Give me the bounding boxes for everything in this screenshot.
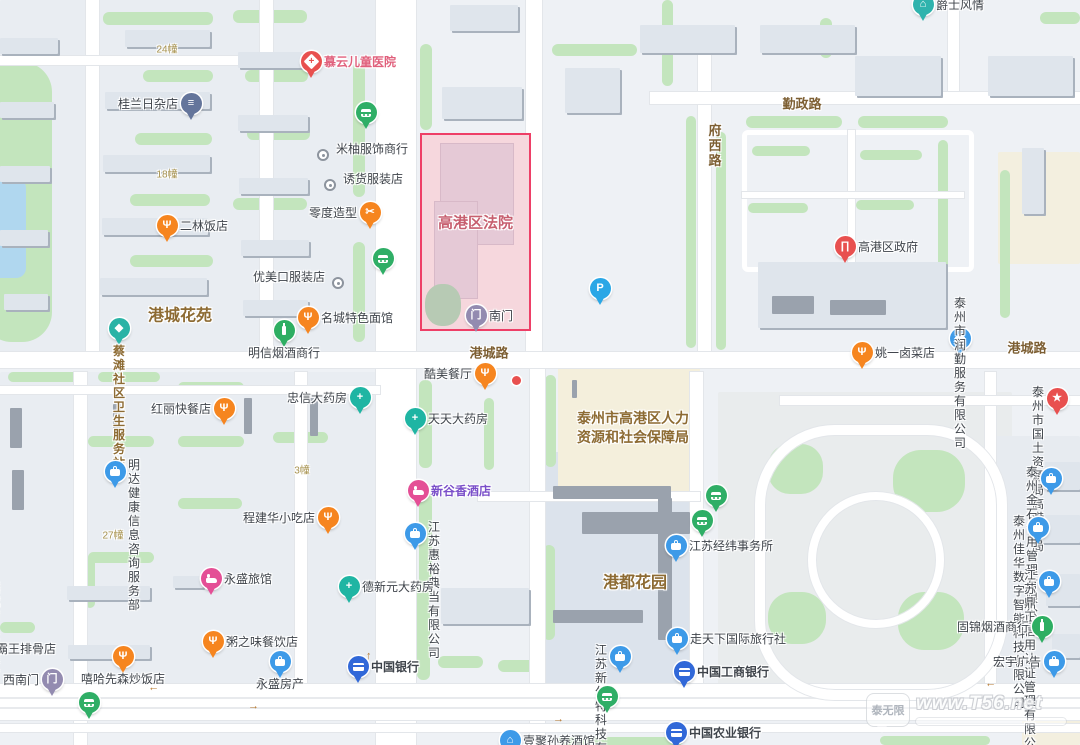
green-area (245, 70, 308, 82)
poi-label: 西南门 (3, 673, 39, 687)
restaurant-pin-icon[interactable]: Ψ (298, 307, 319, 328)
bus-stop-pin-icon[interactable] (692, 510, 713, 531)
bank-pin-icon[interactable] (348, 656, 369, 677)
building (68, 645, 150, 659)
road (0, 56, 262, 65)
building (565, 68, 620, 113)
green-area (353, 242, 365, 342)
company-pin-icon[interactable] (666, 535, 687, 556)
bus-stop-pin-icon[interactable] (356, 102, 377, 123)
case-icon (1046, 476, 1056, 483)
poi-label: 蔡滩社区卫 生服务站 (113, 344, 125, 470)
pharmacy-pin-icon[interactable]: + (350, 387, 371, 408)
gov-icon: ∏ (840, 241, 849, 252)
city-block (0, 372, 376, 684)
case-icon (615, 654, 625, 661)
green-area (88, 552, 154, 563)
company-pin-icon[interactable] (105, 461, 126, 482)
restaurant-pin-icon[interactable]: Ψ (475, 363, 496, 384)
hospital-pin-icon[interactable]: + (301, 51, 322, 72)
green-area (130, 194, 210, 206)
green-area (746, 116, 842, 128)
case-icon (1049, 659, 1059, 666)
restaurant-pin-icon[interactable]: Ψ (214, 398, 235, 419)
company-pin-icon[interactable] (1039, 571, 1060, 592)
tobacco-wine-shop-pin-icon[interactable] (1032, 616, 1053, 637)
road (698, 42, 711, 360)
restaurant-pin-icon[interactable]: Ψ (113, 646, 134, 667)
p-icon: P (596, 283, 603, 294)
bus-stop-pin-icon[interactable] (79, 692, 100, 713)
building-number-label: 24幢 (156, 41, 177, 56)
building (0, 102, 54, 118)
salon-pin-icon[interactable]: ✂ (360, 202, 381, 223)
highlighted-court-area[interactable]: 高港区法院 (420, 133, 531, 331)
case-icon (671, 543, 681, 550)
green-area (143, 70, 213, 82)
bus-icon (378, 255, 388, 263)
area-label: 港都花园 (603, 574, 667, 593)
building (12, 470, 24, 510)
bottle-icon (1040, 622, 1044, 631)
green-area (178, 436, 244, 447)
green-area (130, 255, 213, 267)
shop-ring-icon[interactable] (324, 179, 336, 191)
poi-label: 泰州市润勤服 务有限公司 (954, 296, 966, 450)
pharmacy-pin-icon[interactable]: + (339, 576, 360, 597)
bus-icon (602, 693, 612, 701)
building-number-label: 27幢 (102, 527, 123, 542)
bank-icon (671, 729, 682, 737)
building (855, 56, 941, 96)
case-icon (1033, 525, 1043, 532)
green-area (1040, 12, 1080, 24)
grid-icon: ≡ (188, 98, 194, 109)
road (742, 192, 964, 198)
direction-arrow: → (553, 713, 564, 725)
green-area (420, 44, 432, 130)
poi-label: 爵士风情 (936, 0, 984, 12)
water-area (0, 178, 26, 278)
poi-label: 粥之味餐饮店 (226, 635, 298, 649)
poi-label: 德新元大药房 (362, 580, 434, 594)
cross-icon: + (357, 392, 363, 403)
scissors-icon: ✂ (365, 207, 374, 218)
parking-pin-icon[interactable]: P (590, 278, 611, 299)
building (830, 300, 886, 315)
poi-label: 壹聚孙养酒馆 (523, 734, 595, 745)
poi-dot-icon[interactable] (512, 376, 521, 385)
house-icon: ⌂ (920, 0, 927, 10)
roundabout-inner-road (808, 492, 944, 628)
green-area (552, 44, 637, 56)
venue-pin-icon[interactable]: ⌂ (913, 0, 934, 15)
poi-label: 酷美餐厅 (424, 367, 472, 381)
bank-pin-icon[interactable] (666, 722, 687, 743)
restaurant-pin-icon[interactable]: Ψ (318, 507, 339, 528)
building (238, 52, 308, 68)
bottle-icon (282, 326, 286, 335)
bank-icon (353, 663, 364, 671)
shop-ring-icon[interactable] (317, 149, 329, 161)
building (10, 408, 22, 448)
tobacco-wine-shop-pin-icon[interactable] (274, 320, 295, 341)
watermark-url: www.T56.net (916, 693, 1042, 715)
building (450, 5, 518, 31)
building (0, 166, 50, 182)
building (4, 294, 48, 310)
bank-pin-icon[interactable] (674, 661, 695, 682)
road-label: 港城路 (1007, 338, 1046, 357)
green-area (686, 116, 696, 348)
green-area (438, 656, 483, 668)
poi-label: 优美口服装店 (253, 270, 325, 284)
green-area (545, 375, 556, 467)
company-pin-icon[interactable] (1044, 651, 1065, 672)
poi-label: 程建华小吃店 (243, 511, 315, 525)
road (376, 0, 416, 745)
restaurant-pin-icon[interactable]: Ψ (203, 631, 224, 652)
grocery-pin-icon[interactable]: ≡ (181, 93, 202, 114)
south-gate-pin-icon[interactable]: 门 (466, 305, 487, 326)
poi-label: 永盛房产 (256, 677, 304, 691)
map-canvas[interactable]: 高港区法院 港城花苑港都花园泰州市高港区人力 资源和社会保障局港城路港城路勤政路… (0, 0, 1080, 745)
pharmacy-pin-icon[interactable]: + (405, 408, 426, 429)
building (244, 398, 252, 434)
green-area (880, 736, 990, 745)
food-icon: Ψ (209, 636, 218, 647)
hospital-cross-icon: + (303, 54, 319, 70)
health-station-pin-icon[interactable]: ◆ (109, 318, 130, 339)
building (238, 115, 308, 131)
bureau-pin-icon[interactable]: ★ (1047, 388, 1068, 409)
gate-icon: 门 (471, 310, 482, 321)
building-number-label: 3幢 (294, 462, 310, 477)
cross-icon: + (412, 413, 418, 424)
bed-icon (413, 490, 424, 495)
building (572, 380, 577, 398)
building (760, 25, 855, 53)
building (441, 588, 529, 624)
bus-stop-pin-icon[interactable] (706, 485, 727, 506)
green-area (0, 622, 35, 633)
poi-label: 走天下国际旅行社 (690, 632, 786, 646)
company-pin-icon[interactable] (1041, 468, 1062, 489)
poi-label: 南门 (489, 309, 513, 323)
diamond-icon: ◆ (115, 323, 123, 334)
building (239, 178, 308, 194)
direction-arrow: → (985, 680, 996, 692)
poi-label: 零度造型 (309, 206, 357, 220)
realty-pin-icon[interactable] (270, 651, 291, 672)
road-label: 港城路 (469, 343, 508, 362)
poi-label: 慕云儿童医院 (324, 55, 396, 69)
watermark-logo: 泰无限 (866, 693, 910, 727)
bus-icon (84, 699, 94, 707)
building (658, 498, 672, 640)
watermark-tagline (916, 718, 1066, 725)
area-label: 泰州市高港区人力 资源和社会保障局 (577, 409, 689, 447)
food-icon: Ψ (163, 220, 172, 231)
poi-label: 红丽快餐店 (151, 402, 211, 416)
road-label: 勤政路 (782, 94, 821, 113)
poi-label: 天天大药房 (428, 412, 488, 426)
southwest-gate-pin-icon[interactable]: 门 (42, 669, 63, 690)
green-area (98, 372, 160, 382)
building (100, 278, 207, 295)
food-icon: Ψ (481, 368, 490, 379)
green-area (484, 398, 494, 470)
food-icon: Ψ (858, 347, 867, 358)
hotel-pin-icon[interactable] (408, 480, 429, 501)
building (640, 25, 735, 53)
building (442, 87, 522, 119)
star-icon: ★ (1052, 393, 1062, 404)
court-label: 高港区法院 (438, 212, 513, 233)
building (1022, 148, 1044, 214)
travel-agency-pin-icon[interactable] (667, 628, 688, 649)
poi-label: 宏宇广告 (993, 655, 1041, 669)
restaurant-pin-icon[interactable]: Ψ (157, 215, 178, 236)
case-icon (672, 636, 682, 643)
building (173, 576, 203, 588)
building (772, 296, 814, 314)
poi-label: 米柚服饰商行 (336, 142, 408, 156)
poi-label: 霸王排骨店 (0, 642, 56, 656)
food-icon: Ψ (220, 403, 229, 414)
poi-label: 二林饭店 (180, 219, 228, 233)
case-icon (1044, 579, 1054, 586)
bus-icon (361, 109, 371, 117)
poi-label: 桂兰日杂店 (118, 97, 178, 111)
poi-label: 新谷香酒店 (431, 484, 491, 498)
bank-icon (679, 668, 690, 676)
poi-label: 永盛旅馆 (224, 572, 272, 586)
road (948, 0, 959, 95)
watermark: 泰无限 www.T56.net (866, 693, 1066, 727)
poi-label: 江苏经纬事务所 (689, 539, 773, 553)
poi-label: 明达健康信息 咨询服务部 (128, 458, 140, 612)
company-pin-icon[interactable] (405, 523, 426, 544)
poi-label: 诱货服装店 (343, 172, 403, 186)
building (988, 56, 1073, 96)
green-area (858, 116, 948, 128)
hotel-pin-icon[interactable] (201, 568, 222, 589)
company-pin-icon[interactable] (1028, 517, 1049, 538)
food-icon: Ψ (119, 651, 128, 662)
poi-label: 忠信大药房 (287, 391, 347, 405)
poi-label: 高港区政府 (858, 240, 918, 254)
bus-stop-pin-icon[interactable] (597, 686, 618, 707)
gate-icon: 门 (47, 674, 58, 685)
green-area (135, 133, 212, 145)
restaurant-pin-icon[interactable]: Ψ (852, 342, 873, 363)
house-icon: ⌂ (507, 735, 514, 745)
building-number-label: 18幢 (156, 166, 177, 181)
direction-arrow: → (248, 700, 259, 712)
building (758, 262, 946, 328)
road-label: 府西路 (705, 124, 724, 169)
green-area (178, 498, 242, 509)
poi-label: 姚一卤菜店 (875, 346, 935, 360)
bus-icon (697, 517, 707, 525)
building (553, 610, 643, 623)
building (241, 240, 309, 256)
poi-label: 中国工商银行 (697, 665, 769, 679)
food-icon: Ψ (304, 312, 313, 323)
road (86, 0, 99, 362)
case-icon (275, 659, 285, 666)
restaurant-pin-icon[interactable]: ⌂ (500, 730, 521, 745)
building (0, 230, 48, 246)
area-label: 港城花苑 (148, 307, 212, 326)
company-pin-icon[interactable] (610, 646, 631, 667)
case-icon (110, 469, 120, 476)
court-green (425, 284, 461, 326)
building (0, 38, 58, 54)
food-icon: Ψ (324, 512, 333, 523)
poi-label: 嘻哈先森炒饭店 (81, 672, 165, 686)
poi-label: 名城特色面馆 (321, 311, 393, 325)
poi-label: 中国农业银行 (689, 726, 761, 740)
shop-ring-icon[interactable] (332, 277, 344, 289)
poi-label: 明信烟酒商行 (248, 346, 320, 360)
building (582, 512, 660, 534)
green-area (8, 372, 78, 382)
poi-label: 固锦烟酒商行 (957, 620, 1029, 634)
government-pin-icon[interactable]: ∏ (835, 236, 856, 257)
case-icon (410, 531, 420, 538)
building (553, 486, 671, 499)
cross-icon: + (346, 581, 352, 592)
bus-icon (711, 492, 721, 500)
bed-icon (206, 578, 217, 583)
poi-label: 中国银行 (371, 660, 419, 674)
green-area (1000, 170, 1010, 318)
bus-stop-pin-icon[interactable] (373, 248, 394, 269)
green-area (103, 12, 213, 25)
